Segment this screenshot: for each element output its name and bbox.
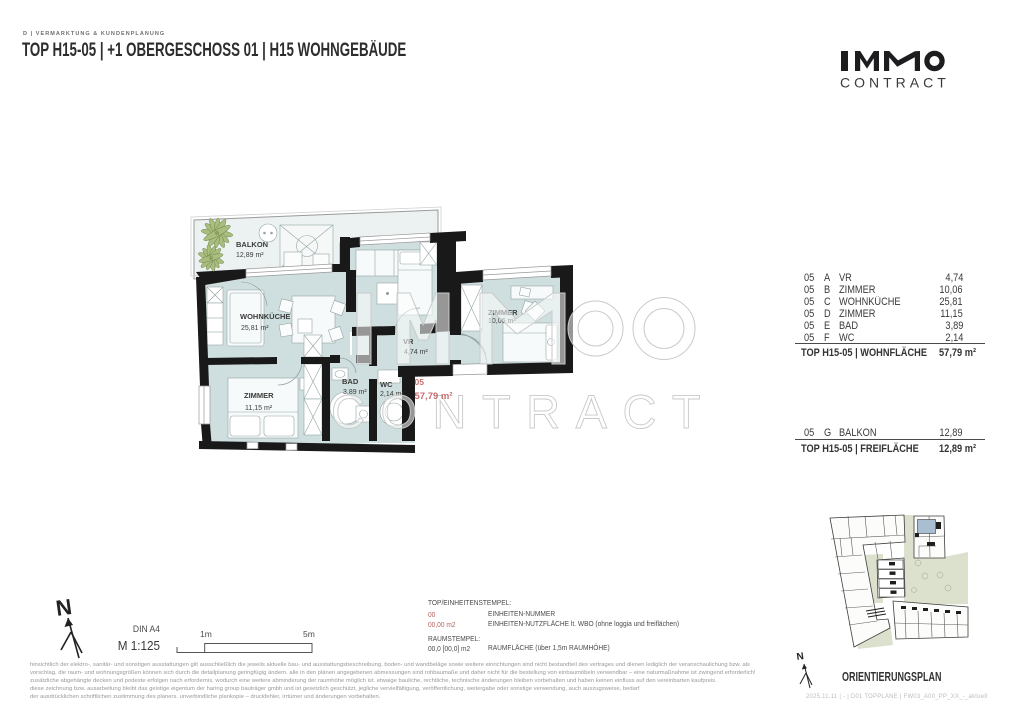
svg-text:1m: 1m (200, 629, 212, 639)
svg-text:CONTRACT: CONTRACT (840, 75, 950, 91)
svg-text:57,79 m²: 57,79 m² (415, 391, 453, 402)
svg-text:05: 05 (415, 377, 425, 387)
svg-text:25,81 m²: 25,81 m² (241, 325, 269, 332)
svg-text:BALKON: BALKON (236, 240, 268, 249)
svg-text:WOHNKÜCHE: WOHNKÜCHE (240, 312, 290, 321)
svg-text:ZIMMER: ZIMMER (244, 391, 274, 400)
svg-text:N: N (796, 651, 805, 663)
svg-text:12,89 m²: 12,89 m² (236, 252, 264, 259)
svg-text:N: N (54, 594, 73, 621)
svg-text:5m: 5m (303, 629, 315, 639)
svg-text:11,15 m²: 11,15 m² (245, 405, 273, 412)
svg-text:CONTRACT: CONTRACT (331, 385, 710, 438)
